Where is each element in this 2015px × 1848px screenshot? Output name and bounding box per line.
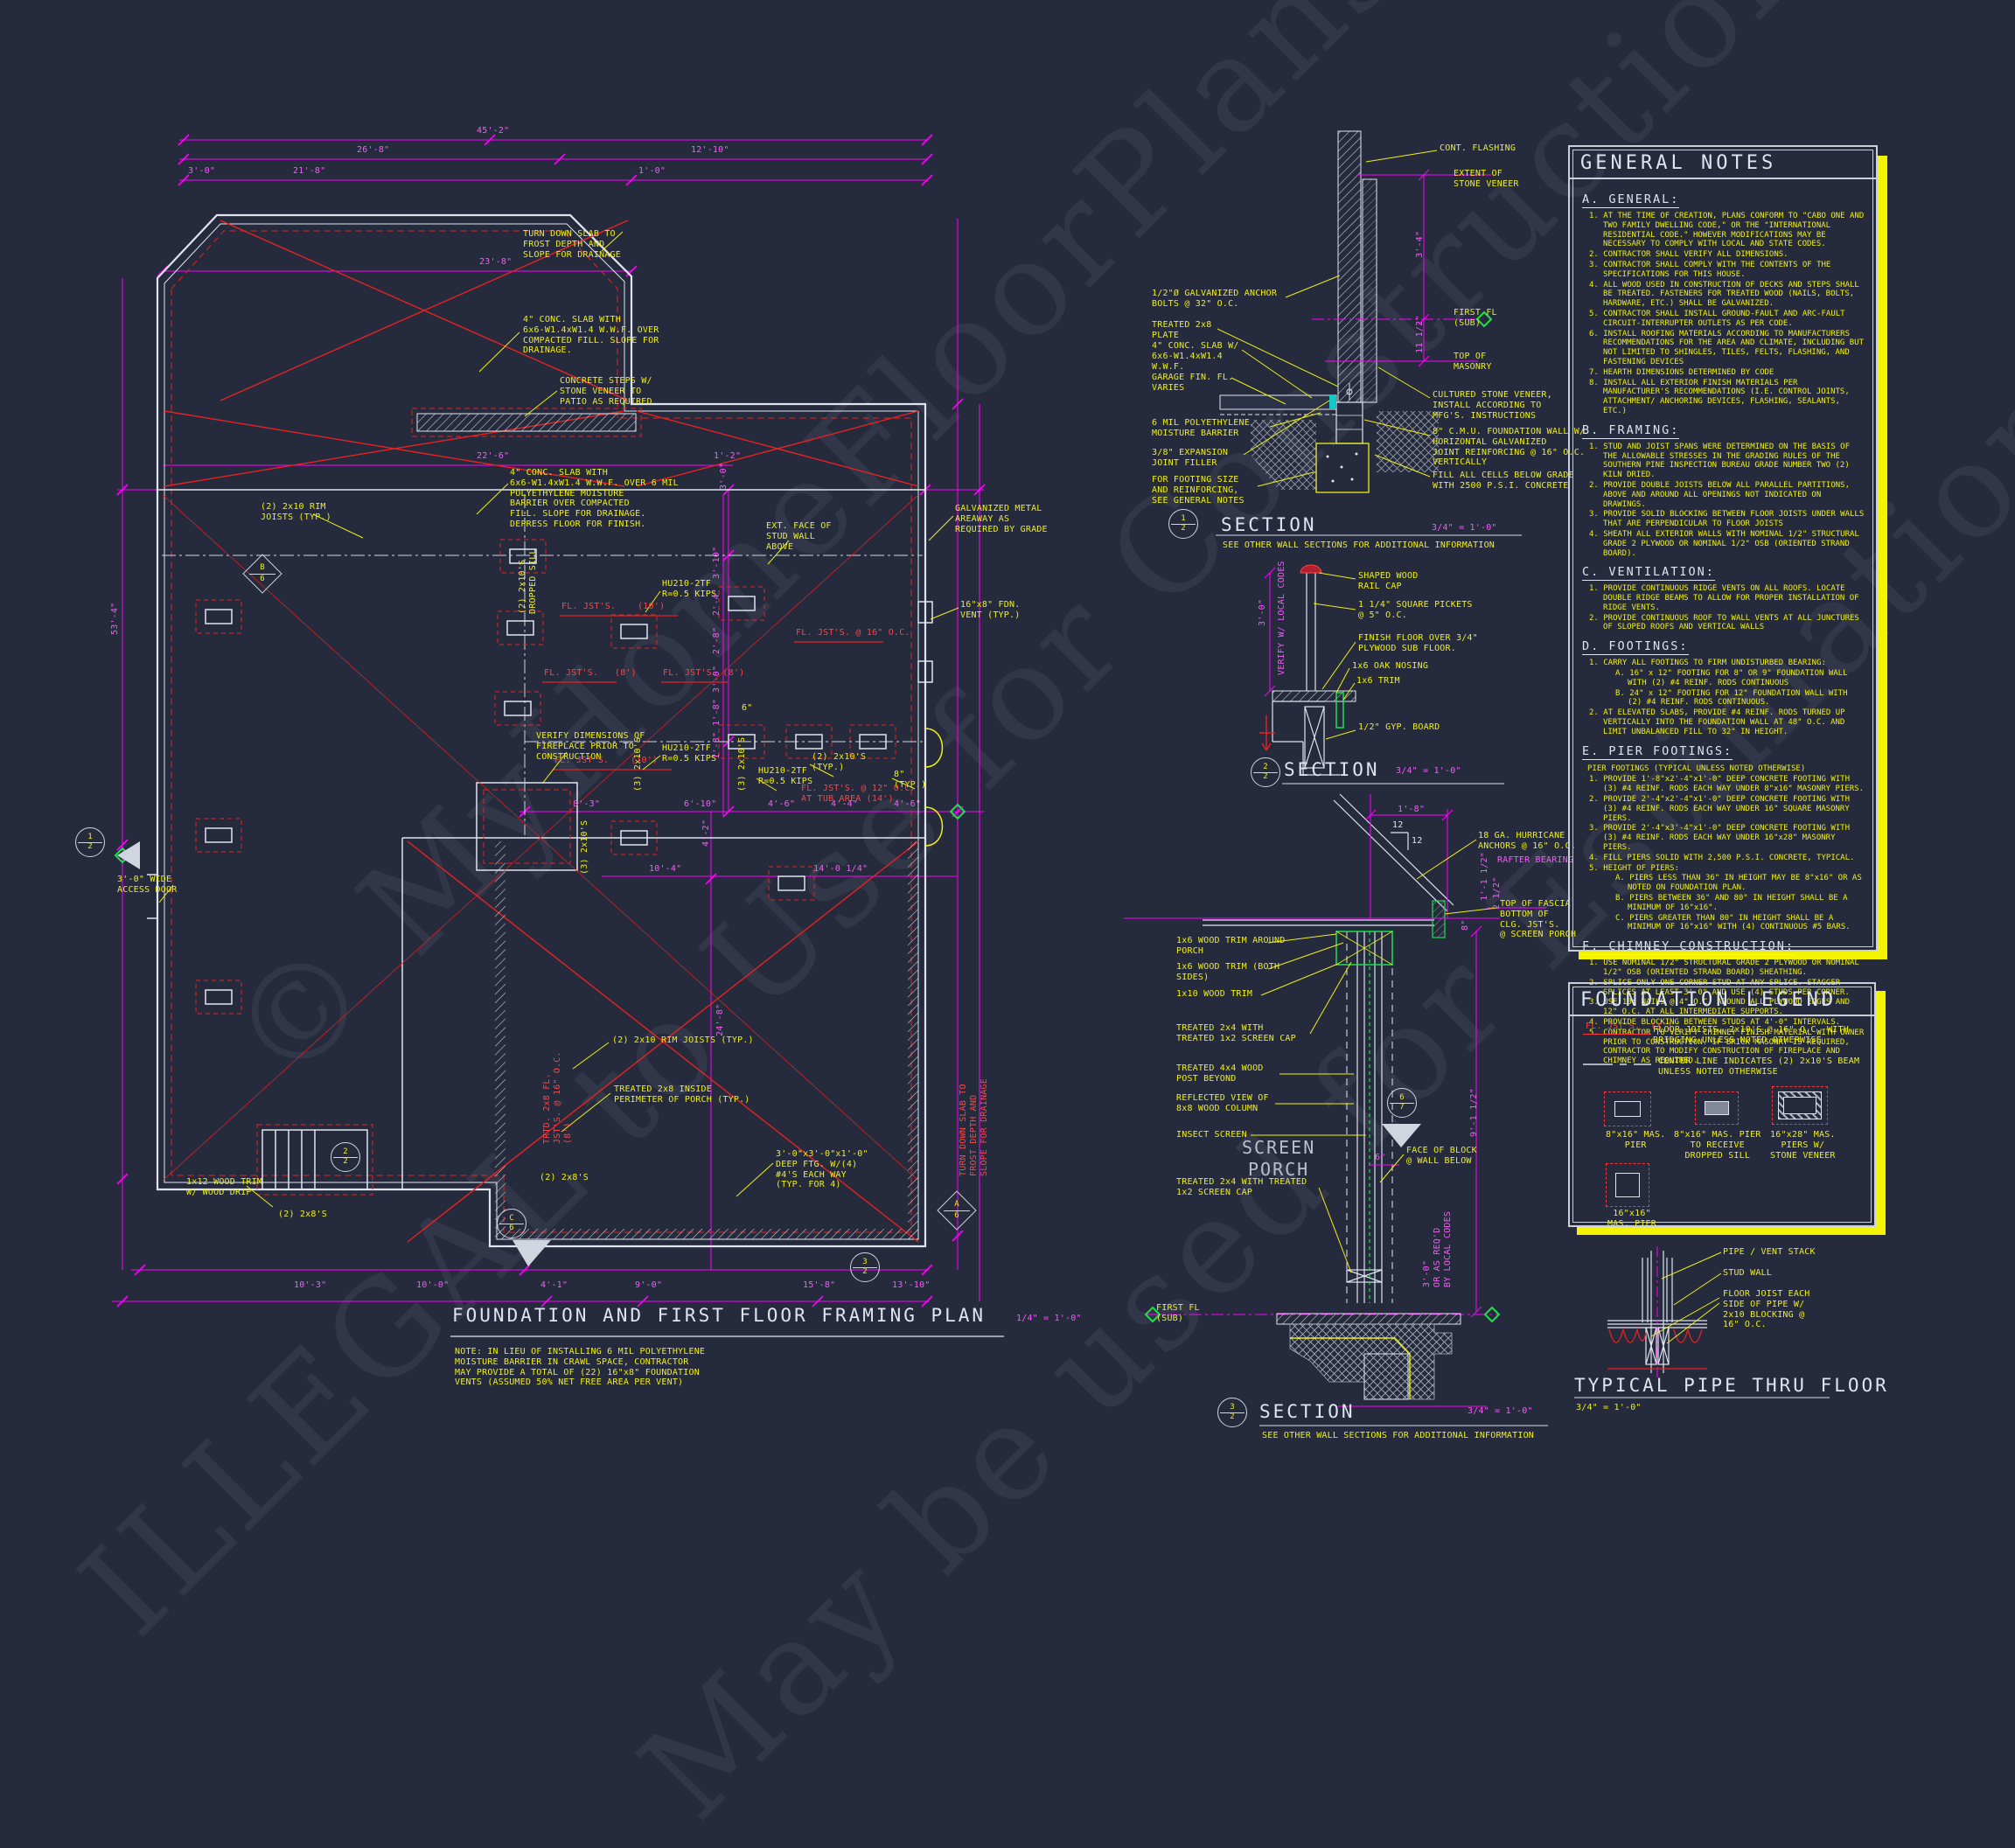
note-item: 4. SHEATH ALL EXTERIOR WALLS WITH NOMINA… — [1589, 530, 1865, 558]
legend-joist-arrow — [1583, 1034, 1651, 1035]
section-label: 1x6 OAK NOSING — [1352, 661, 1428, 672]
dimension-label: 4'-6" — [894, 799, 921, 810]
section-label: TREATED 4x4 WOOD POST BEYOND — [1176, 1063, 1264, 1084]
section-label: 4" CONC. SLAB W/ 6x6-W1.4xW1.4 W.W.F. — [1152, 341, 1239, 372]
cad-sheet: { "watermark": { "line1": "© MyHomeFloor… — [0, 0, 2015, 1511]
joist-label: FL. JST'S. (8') — [663, 668, 744, 679]
dimension-label: 12'-10" — [691, 145, 729, 156]
dimension-label: 4'-4" — [831, 799, 858, 810]
section-label: TREATED 2x4 WITH TREATED 1x2 SCREEN CAP — [1176, 1177, 1307, 1198]
dimension-label: 10'-3" — [294, 1280, 326, 1291]
section-label: FACE OF BLOCK @ WALL BELOW — [1406, 1146, 1477, 1167]
dimension-label: 14'-0 1/4" — [813, 864, 868, 875]
slope-label: 12 — [1392, 820, 1403, 831]
plan-title: FOUNDATION AND FIRST FLOOR FRAMING PLAN — [452, 1305, 986, 1327]
section-title: SECTION — [1259, 1401, 1356, 1423]
dimension-label: 15'-8" — [803, 1280, 835, 1291]
joist-label: FL. JST'S. (10') — [554, 756, 658, 766]
joist-label: TRTD. 2x8 FL. JST'S. @ 16" O.C. (8') — [542, 1051, 573, 1144]
plan-scale: 1/4" = 1'-0" — [1016, 1314, 1082, 1324]
section-label: TREATED 2x8 PLATE — [1152, 320, 1211, 341]
plan-annotation: 3'-0"x3'-0"x1'-0" DEEP FTG. W/(4) #4'S E… — [776, 1149, 868, 1190]
plan-annotation: 16"x8" FDN. VENT (TYP.) — [960, 600, 1020, 621]
section-scale: 3/4" = 1'-0" — [1468, 1406, 1533, 1417]
panel-shadow — [1878, 156, 1887, 959]
dimension-label: 1'-8" — [1398, 805, 1425, 815]
plan-annotation: 3'-0" WIDE ACCESS DOOR — [117, 875, 177, 896]
joist-label: TURN DOWN SLAB TO FROST DEPTH AND SLOPE … — [959, 1078, 989, 1176]
note-item: 3. PROVIDE SOLID BLOCKING BETWEEN FLOOR … — [1589, 510, 1865, 529]
plan-annotation: (2) 2x10 RIM JOISTS (TYP.) — [261, 502, 331, 523]
detail-marker: 3 2 — [850, 1252, 880, 1282]
dimension-label: 2 1/2" — [1492, 877, 1503, 910]
plan-annotation: CONCRETE STEPS W/ STONE VENEER TO PATIO … — [560, 376, 652, 407]
note-item: 8. INSTALL ALL EXTERIOR FINISH MATERIALS… — [1589, 379, 1865, 416]
section-label: FINISH FLOOR OVER 3/4" PLYWOOD SUB FLOOR… — [1358, 633, 1478, 654]
plan-annotation: (2) 2x10 RIM JOISTS (TYP.) — [612, 1036, 754, 1046]
dimension-label: 3'-0" — [188, 166, 215, 177]
section-subtitle: SEE OTHER WALL SECTIONS FOR ADDITIONAL I… — [1262, 1431, 1534, 1441]
slope-label: 12 — [1412, 836, 1422, 847]
dimension-label: 10'-0" — [416, 1280, 449, 1291]
dimension-label: 3'-0" — [719, 463, 729, 490]
dimension-label: 6'-10" — [684, 799, 716, 810]
section-label: 3/8" EXPANSION JOINT FILLER — [1152, 448, 1228, 469]
legend-label: FLOOR JOISTS, 2x10'S @ 16" O.C. WITH BRI… — [1653, 1025, 1849, 1046]
notes-heading: C. VENTILATION: — [1582, 565, 1715, 581]
plan-annotation: GALVANIZED METAL AREAWAY AS REQUIRED BY … — [955, 504, 1048, 534]
note-item: 2. PROVIDE CONTINUOUS ROOF TO WALL VENTS… — [1589, 614, 1865, 633]
note-item: 2. CONTRACTOR SHALL VERIFY ALL DIMENSION… — [1589, 250, 1865, 260]
dimension-label: 4'-1" — [540, 1280, 568, 1291]
dimension-label: 3'-4" — [1415, 231, 1426, 258]
section-label: CONT. FLASHING — [1440, 143, 1516, 154]
dimension-label: 23'-8" — [479, 257, 512, 268]
dimension-label: 21'-8" — [293, 166, 325, 177]
dimension-label: 3'-0" OR AS REQ'D BY LOCAL CODES — [1422, 1211, 1453, 1287]
dimension-label: 2'-8" — [712, 627, 722, 654]
plan-annotation: (3) 2x10'S — [737, 737, 748, 792]
dimension-label: 9'-0" — [635, 1280, 662, 1291]
note-item: 5. HEIGHT OF PIERS: — [1589, 864, 1865, 874]
section-label: GARAGE FIN. FL. VARIES — [1152, 373, 1233, 394]
dimension-label: 24'-8" — [715, 1004, 726, 1036]
plan-annotation: 1x12 WOOD TRIM W/ WOOD DRIP — [186, 1177, 262, 1198]
note-item: 1. PROVIDE CONTINUOUS RIDGE VENTS ON ALL… — [1589, 584, 1865, 612]
note-item: 1. STUD AND JOIST SPANS WERE DETERMINED … — [1589, 443, 1865, 480]
section-label: FIRST FL (SUB) — [1156, 1303, 1200, 1324]
notes-title: GENERAL NOTES — [1570, 147, 1876, 179]
section-label: TOP OF FASCIA BOTTOM OF CLG. JST'S. @ SC… — [1500, 899, 1576, 940]
notes-heading: F. CHIMNEY CONSTRUCTION: — [1582, 939, 1795, 955]
note-item: A. PIERS LESS THAN 36" IN HEIGHT MAY BE … — [1601, 874, 1865, 893]
legend-label: 8"x16" MAS. PIER — [1606, 1130, 1665, 1151]
legend-label: 8"x16" MAS. PIER TO RECEIVE DROPPED SILL — [1674, 1130, 1761, 1161]
dimension-label: 1'-1 1/2" — [1480, 852, 1490, 901]
note-item: 7. HEARTH DIMENSIONS DETERMINED BY CODE — [1589, 368, 1865, 378]
section-label: FOR FOOTING SIZE AND REINFORCING, SEE GE… — [1152, 475, 1245, 506]
plan-note: NOTE: IN LIEU OF INSTALLING 6 MIL POLYET… — [455, 1347, 705, 1388]
note-item: 6. INSTALL ROOFING MATERIALS ACCORDING T… — [1589, 330, 1865, 367]
section-label: TOP OF MASONRY — [1454, 352, 1492, 373]
plan-annotation: (3) 2x10'S — [580, 820, 590, 875]
detail-marker: 6 7 — [1387, 1088, 1417, 1118]
section-label: 1/2"Ø GALVANIZED ANCHOR BOLTS @ 32" O.C. — [1152, 289, 1277, 310]
section-subtitle: SEE OTHER WALL SECTIONS FOR ADDITIONAL I… — [1223, 540, 1495, 551]
legend-label: 16"x28" MAS. PIERS W/ STONE VENEER — [1770, 1130, 1836, 1161]
legend-title: FOUNDATION LEGEND — [1570, 984, 1874, 1016]
joist-label: FL. JST'S. @ 16" O.C. — [796, 628, 910, 638]
legend-label: 16"x16" MAS. PIER — [1607, 1209, 1656, 1230]
section-label: SCREEN PORCH — [1242, 1137, 1315, 1181]
legend-label: CENTER LINE INDICATES (2) 2x10'S BEAM UN… — [1658, 1056, 1859, 1077]
plan-annotation: HU210-2TF R=0.5 KIPS — [662, 743, 716, 764]
section-title: SECTION — [1221, 514, 1317, 536]
pipe-detail-title: TYPICAL PIPE THRU FLOOR — [1574, 1375, 1889, 1397]
detail-marker: C 6 — [497, 1209, 526, 1238]
section-label: FILL ALL CELLS BELOW GRADE WITH 2500 P.S… — [1433, 471, 1574, 492]
pipe-label: FLOOR JOIST EACH SIDE OF PIPE W/ 2x10 BL… — [1723, 1289, 1810, 1330]
general-notes-panel: GENERAL NOTES A. GENERAL: 1. AT THE TIME… — [1568, 145, 1878, 952]
section-title: SECTION — [1284, 759, 1380, 781]
section-label: 1 1/4" SQUARE PICKETS @ 5" O.C. — [1358, 600, 1473, 621]
note-item: 1. PROVIDE 1'-8"x2'-4"x1'-0" DEEP CONCRE… — [1589, 775, 1865, 794]
dimension-label: 13'-10" — [892, 1280, 931, 1291]
dimension-label: 1'-8" — [712, 732, 722, 759]
section-label: 1/2" GYP. BOARD — [1358, 722, 1440, 733]
plan-annotation: EXT. FACE OF STUD WALL ABOVE — [766, 521, 832, 552]
joist-label: FL. JST'S. (10') — [561, 602, 665, 612]
section-label: EXTENT OF STONE VENEER — [1454, 169, 1519, 190]
section-label: 1x6 WOOD TRIM (BOTH SIDES) — [1176, 962, 1279, 983]
dimension-label: 11 1/2" — [1415, 315, 1426, 353]
plan-annotation: TREATED 2x8 INSIDE PERIMETER OF PORCH (T… — [614, 1084, 750, 1105]
note-item: 2. PROVIDE 2'-4"x2'-4"x1'-0" DEEP CONCRE… — [1589, 795, 1865, 823]
note-item: 3. PROVIDE 2'-4"x3'-4"x1'-0" DEEP CONCRE… — [1589, 824, 1865, 852]
section-label: CULTURED STONE VENEER, INSTALL ACCORDING… — [1433, 390, 1552, 421]
dimension-label: 10'-4" — [649, 864, 681, 875]
section-label: VERIFY W/ LOCAL CODES — [1277, 561, 1287, 675]
dimension-label: 3'-0" — [712, 666, 722, 693]
note-item: 5. CONTRACTOR SHALL INSTALL GROUND-FAULT… — [1589, 310, 1865, 329]
note-item: C. PIERS GREATER THAN 80" IN HEIGHT SHAL… — [1601, 914, 1865, 933]
note-item: 1. CARRY ALL FOOTINGS TO FIRM UNDISTURBE… — [1589, 659, 1865, 668]
section-marker: 1 2 — [1168, 509, 1198, 539]
section-label: 1x10 WOOD TRIM — [1176, 989, 1252, 1000]
plan-annotation: TURN DOWN SLAB TO FROST DEPTH AND SLOPE … — [523, 229, 621, 260]
section-label: 6 MIL POLYETHYLENE MOISTURE BARRIER — [1152, 418, 1250, 439]
panel-shadow — [1876, 991, 1886, 1232]
notes-heading: B. FRAMING: — [1582, 423, 1679, 439]
note-item: 3. CONTRACTOR SHALL COMPLY WITH THE CONT… — [1589, 261, 1865, 280]
pipe-label: STUD WALL — [1723, 1268, 1772, 1279]
note-item: 2. AT ELEVATED SLABS, PROVIDE #4 REINF. … — [1589, 708, 1865, 736]
section-label: RAFTER BEARING — [1497, 855, 1573, 866]
plan-annotation: (2) 2x8'S — [540, 1173, 589, 1183]
dimension-label: 45'-2" — [477, 126, 509, 136]
detail-marker: 1 2 — [75, 827, 105, 857]
plan-annotation: 4" CONC. SLAB WITH 6x6-W1.4xW1.4 W.W.F. … — [510, 468, 679, 530]
note-item: PIER FOOTINGS (TYPICAL UNLESS NOTED OTHE… — [1587, 764, 1865, 774]
note-item: 4. ALL WOOD USED IN CONSTRUCTION OF DECK… — [1589, 281, 1865, 309]
section-label: 8" C.M.U. FOUNDATION WALL W/ HORIZONTAL … — [1433, 427, 1585, 468]
dimension-label: 26'-8" — [357, 145, 389, 156]
pipe-label: PIPE / VENT STACK — [1723, 1247, 1816, 1258]
plan-annotation: 4" CONC. SLAB WITH 6x6-W1.4xW1.4 W.W.F. … — [523, 315, 659, 356]
plan-annotation: 6" — [742, 703, 752, 714]
plan-annotation: (2) 2x10'S (TYP.) — [812, 752, 866, 773]
section-marker: 2 2 — [1251, 757, 1280, 787]
dimension-label: 1'-8" — [712, 699, 722, 726]
elevation-marker: A 6 — [937, 1190, 976, 1230]
dimension-label: 9'-1 1/2" — [1469, 1088, 1480, 1137]
dimension-label: 8'-3" — [573, 799, 600, 810]
detail-marker: 2 2 — [331, 1142, 360, 1172]
dimension-label: 2'-4" — [712, 589, 722, 616]
plan-annotation: (2) 2x8'S — [278, 1210, 327, 1220]
notes-heading: A. GENERAL: — [1582, 192, 1679, 208]
section-label: TREATED 2x4 WITH TREATED 1x2 SCREEN CAP — [1176, 1023, 1296, 1044]
note-item: B. 24" x 12" FOOTING FOR 12" FOUNDATION … — [1601, 689, 1865, 708]
dimension-label: 1'-2" — [714, 451, 741, 462]
note-item: 1. AT THE TIME OF CREATION, PLANS CONFOR… — [1589, 212, 1865, 249]
dimension-label: 53'-4" — [110, 603, 121, 635]
note-item: A. 16" x 12" FOOTING FOR 8" OR 9" FOUNDA… — [1601, 669, 1865, 688]
section-label: INSECT SCREEN — [1176, 1130, 1247, 1140]
section-label: REFLECTED VIEW OF 8x8 WOOD COLUMN — [1176, 1093, 1269, 1114]
section-marker: 3 2 — [1217, 1398, 1247, 1427]
plan-annotation: HU210-2TF R=0.5 KIPS — [662, 579, 716, 600]
pipe-detail-scale: 3/4" = 1'-0" — [1576, 1403, 1642, 1413]
elevation-marker: B 6 — [242, 554, 282, 593]
section-label: 1x6 WOOD TRIM AROUND PORCH — [1176, 936, 1285, 957]
plan-annotation: (2) 2x10'S DROPPED SILL — [518, 548, 539, 614]
section-label: FIRST FL (SUB) — [1454, 308, 1497, 329]
section-label: SHAPED WOOD RAIL CAP — [1358, 571, 1418, 592]
dimension-label: 3'-0" — [1258, 599, 1268, 626]
notes-heading: E. PIER FOOTINGS: — [1582, 744, 1733, 760]
section-label: 18 GA. HURRICANE ANCHORS @ 16" O.C. — [1478, 831, 1576, 852]
joist-label: FL. JST'S. (8') — [544, 668, 637, 679]
note-item: 2. PROVIDE DOUBLE JOISTS BELOW ALL PARAL… — [1589, 481, 1865, 509]
dimension-label: 4'-2" — [701, 819, 712, 847]
dimension-label: 4'-6" — [768, 799, 795, 810]
note-item: 1. USE NOMINAL 1/2" STRUCTURAL GRADE 2 P… — [1589, 959, 1865, 978]
dimension-label: 6" — [1375, 1153, 1385, 1163]
note-item: B. PIERS BETWEEN 36" AND 80" IN HEIGHT S… — [1601, 894, 1865, 913]
dimension-label: 8" — [1461, 920, 1471, 931]
section-scale: 3/4" = 1'-0" — [1432, 523, 1497, 533]
note-item: 4. FILL PIERS SOLID WITH 2,500 P.S.I. CO… — [1589, 854, 1865, 863]
dimension-label: 3'-10" — [712, 547, 722, 579]
dimension-label: 22'-6" — [477, 451, 509, 462]
section-label: 1x6 TRIM — [1356, 676, 1400, 687]
dimension-label: 1'-0" — [638, 166, 666, 177]
section-scale: 3/4" = 1'-0" — [1396, 766, 1461, 777]
notes-heading: D. FOOTINGS: — [1582, 639, 1689, 655]
